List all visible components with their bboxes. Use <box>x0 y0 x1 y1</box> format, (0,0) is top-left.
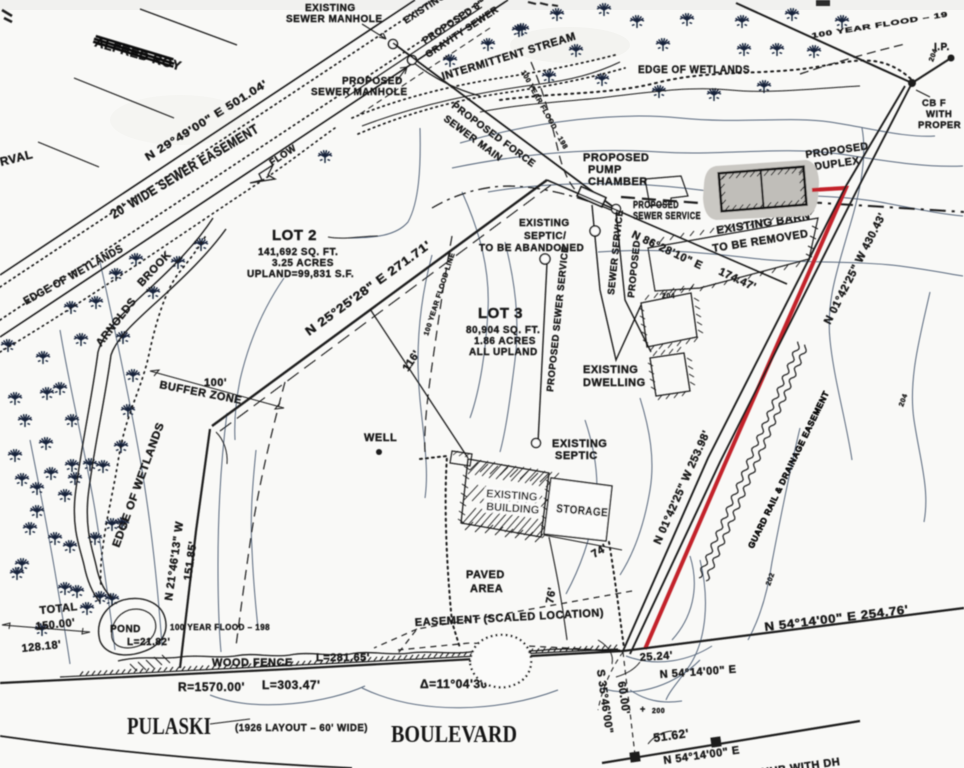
svg-text:100 YEAR FLOOD – 198: 100 YEAR FLOOD – 198 <box>170 623 270 632</box>
svg-text:CHAMBER: CHAMBER <box>588 176 648 188</box>
svg-text:EXISTING: EXISTING <box>305 3 356 14</box>
svg-text:EDGE OF WETLANDS: EDGE OF WETLANDS <box>638 64 750 76</box>
svg-text:25.24': 25.24' <box>639 650 673 664</box>
svg-text:L=21.82': L=21.82' <box>127 637 170 648</box>
svg-text:SEPTIC: SEPTIC <box>555 450 598 462</box>
svg-text:POND: POND <box>110 624 141 635</box>
svg-text:3.25 ACRES: 3.25 ACRES <box>272 258 334 269</box>
svg-text:BOULEVARD: BOULEVARD <box>391 722 517 748</box>
svg-text:PUMP: PUMP <box>588 164 622 176</box>
svg-text:SEWER SERVICE: SEWER SERVICE <box>633 211 701 222</box>
svg-text:+: + <box>640 704 646 714</box>
svg-text:DWELLING: DWELLING <box>583 377 646 389</box>
svg-text:TO BE ABANDONED: TO BE ABANDONED <box>479 243 584 254</box>
svg-text:R=1570.00': R=1570.00' <box>178 680 245 694</box>
svg-text:L=303.47': L=303.47' <box>262 678 320 692</box>
svg-text:ALL UPLAND: ALL UPLAND <box>469 347 538 358</box>
svg-text:1.86 ACRES: 1.86 ACRES <box>474 336 536 347</box>
svg-text:SEWER MANHOLE: SEWER MANHOLE <box>311 87 408 98</box>
svg-text:PROPOSED: PROPOSED <box>583 152 649 164</box>
svg-text:(1926 LAYOUT – 60' WIDE): (1926 LAYOUT – 60' WIDE) <box>235 722 368 734</box>
svg-text:200: 200 <box>652 708 665 715</box>
svg-text:EXISTING: EXISTING <box>552 438 607 450</box>
svg-text:UPLAND=99,831 S.F.: UPLAND=99,831 S.F. <box>247 269 354 280</box>
svg-text:100': 100' <box>204 377 227 389</box>
svg-text:PAVED: PAVED <box>466 569 505 581</box>
svg-text:AREA: AREA <box>470 583 503 595</box>
svg-text:LOT 2: LOT 2 <box>272 227 317 244</box>
svg-text:SEPTIC/: SEPTIC/ <box>524 231 566 242</box>
svg-text:WITH: WITH <box>926 109 952 120</box>
svg-text:SEWER MANHOLE: SEWER MANHOLE <box>286 14 383 25</box>
svg-text:EXISTING: EXISTING <box>519 218 570 229</box>
svg-text:WELL: WELL <box>364 432 397 444</box>
svg-text:EXISTING: EXISTING <box>583 364 638 376</box>
svg-text:CB F: CB F <box>922 98 946 109</box>
svg-text:PULASKI: PULASKI <box>127 714 211 740</box>
svg-text:141,692 SQ. FT.: 141,692 SQ. FT. <box>258 247 338 258</box>
svg-text:PROPER: PROPER <box>918 120 961 131</box>
svg-text:80,904 SQ. FT.: 80,904 SQ. FT. <box>466 325 540 336</box>
svg-text:PROPOSED: PROPOSED <box>342 76 403 87</box>
svg-text:LOT 3: LOT 3 <box>478 305 523 322</box>
